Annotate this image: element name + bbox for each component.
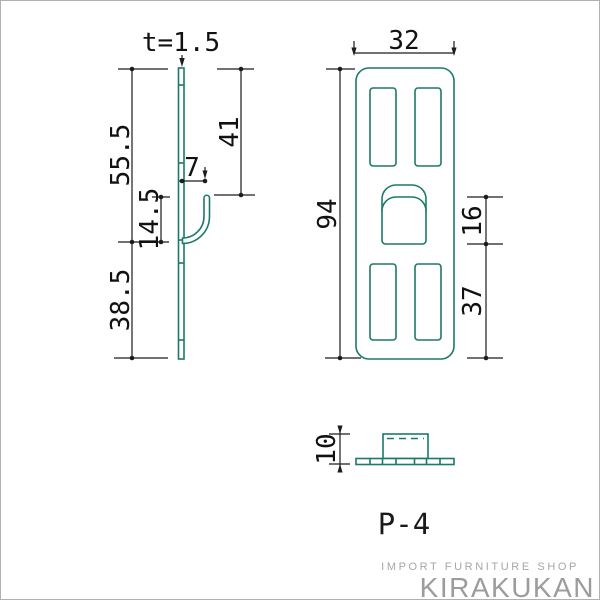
bottom-view <box>356 434 454 465</box>
down-arrow-icon <box>337 426 342 435</box>
front-view-slot-bottom-right <box>415 264 441 340</box>
dim-thickness: t=1.5 <box>142 28 220 67</box>
dim-width: 32 <box>351 26 456 56</box>
front-view <box>356 68 454 359</box>
dim-lower-label: 37 <box>458 285 488 316</box>
down-arrow-icon <box>351 48 356 57</box>
down-arrow-icon <box>451 48 456 57</box>
front-view-slot-top-right <box>415 88 441 166</box>
dim-hook-offset-label: 7 <box>184 153 200 183</box>
part-number-label: P-4 <box>378 507 430 541</box>
dim-hook-slot-label: 16 <box>458 205 488 236</box>
bottom-view-hook-box <box>383 434 428 459</box>
dim-hook-height-label: 14.5 <box>135 188 165 251</box>
dim-depth-label: 10 <box>312 433 342 464</box>
down-arrow-icon <box>179 58 184 67</box>
dim-hook-height: 14.5 <box>135 188 170 251</box>
dim-lower-height: 38.5 <box>106 242 168 360</box>
dim-height: 94 <box>313 67 361 361</box>
front-view-slot-bottom-left <box>370 264 396 340</box>
side-view <box>179 68 210 359</box>
dim-depth: 10 <box>312 426 350 473</box>
dim-lower-height-label: 38.5 <box>106 269 136 332</box>
dim-hook-top-label: 41 <box>215 116 245 147</box>
dim-hook-top: 41 <box>214 67 255 198</box>
dim-hook-slot: 16 <box>458 195 503 247</box>
dim-hook-offset: 7 <box>180 153 208 183</box>
dim-width-label: 32 <box>388 26 419 56</box>
front-view-hook-face <box>382 197 426 244</box>
dim-lower: 37 <box>458 244 503 360</box>
drawing-page: t=1.5 55.5 41 7 14.5 <box>0 0 600 600</box>
shop-logo: IMPORT FURNITURE SHOP KIRAKUKAN <box>381 561 595 601</box>
technical-drawing: t=1.5 55.5 41 7 14.5 <box>1 1 600 601</box>
dim-thickness-label: t=1.5 <box>142 28 220 58</box>
side-view-plate <box>179 68 185 359</box>
side-view-hook <box>183 195 210 243</box>
shop-name: KIRAKUKAN <box>420 572 595 601</box>
down-arrow-icon <box>203 171 208 180</box>
dim-upper-height-label: 55.5 <box>106 124 136 187</box>
dim-height-label: 94 <box>313 198 343 229</box>
front-view-slot-top-left <box>370 88 396 166</box>
